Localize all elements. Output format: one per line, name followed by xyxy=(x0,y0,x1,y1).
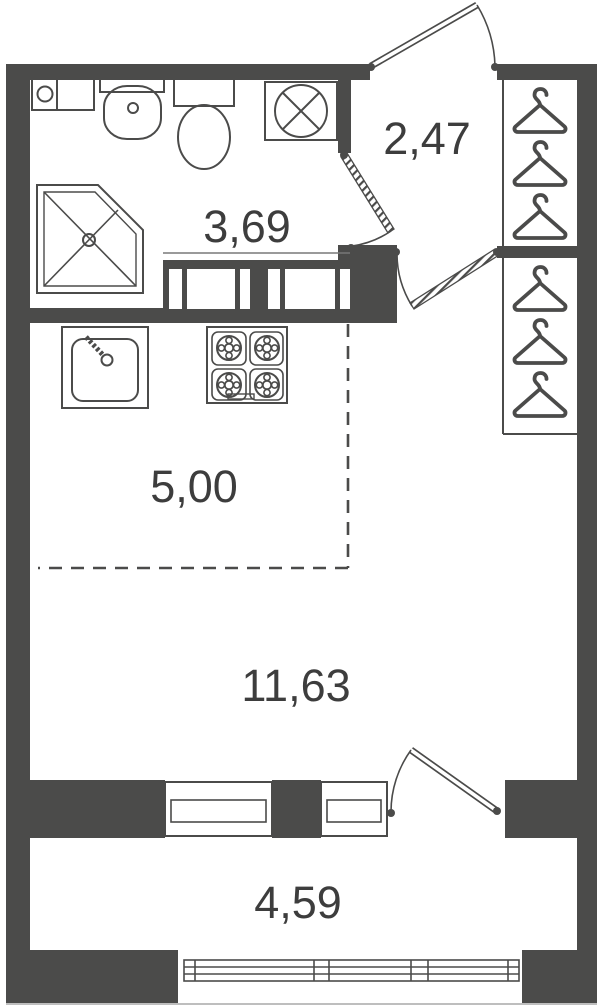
floor-plan: 2,47 3,69 5,00 11,63 4,59 xyxy=(0,0,600,1008)
hanger-icon xyxy=(514,267,565,310)
hanger-icon xyxy=(514,195,565,238)
hanger-icon xyxy=(514,320,565,363)
room-label-living: 11,63 xyxy=(241,660,350,712)
room-label-bathroom: 3,69 xyxy=(203,201,291,253)
hanger-icon xyxy=(514,373,565,416)
floor-plan-drawing xyxy=(0,0,600,1008)
window xyxy=(321,782,387,836)
washbasin-icon xyxy=(100,78,164,139)
bathroom-door xyxy=(340,151,394,252)
storage-unit-icon xyxy=(32,78,94,110)
room-label-kitchen: 5,00 xyxy=(150,461,238,513)
toilet-icon xyxy=(174,78,234,169)
shower-icon xyxy=(37,185,143,293)
stove-icon xyxy=(207,327,287,403)
room-label-hallway: 2,47 xyxy=(383,113,471,165)
living-room-door xyxy=(392,248,501,309)
kitchen-sink-icon xyxy=(62,327,148,408)
washing-machine-icon xyxy=(265,82,337,140)
walls xyxy=(6,64,597,1003)
balcony-door xyxy=(387,750,501,817)
hanger-icon xyxy=(514,89,565,132)
hanger-icon xyxy=(514,142,565,185)
vent-shaft xyxy=(163,253,372,323)
entry-door xyxy=(367,5,499,71)
room-label-balcony: 4,59 xyxy=(254,877,342,929)
zone-divider-dashed xyxy=(38,324,348,568)
window xyxy=(165,782,272,836)
